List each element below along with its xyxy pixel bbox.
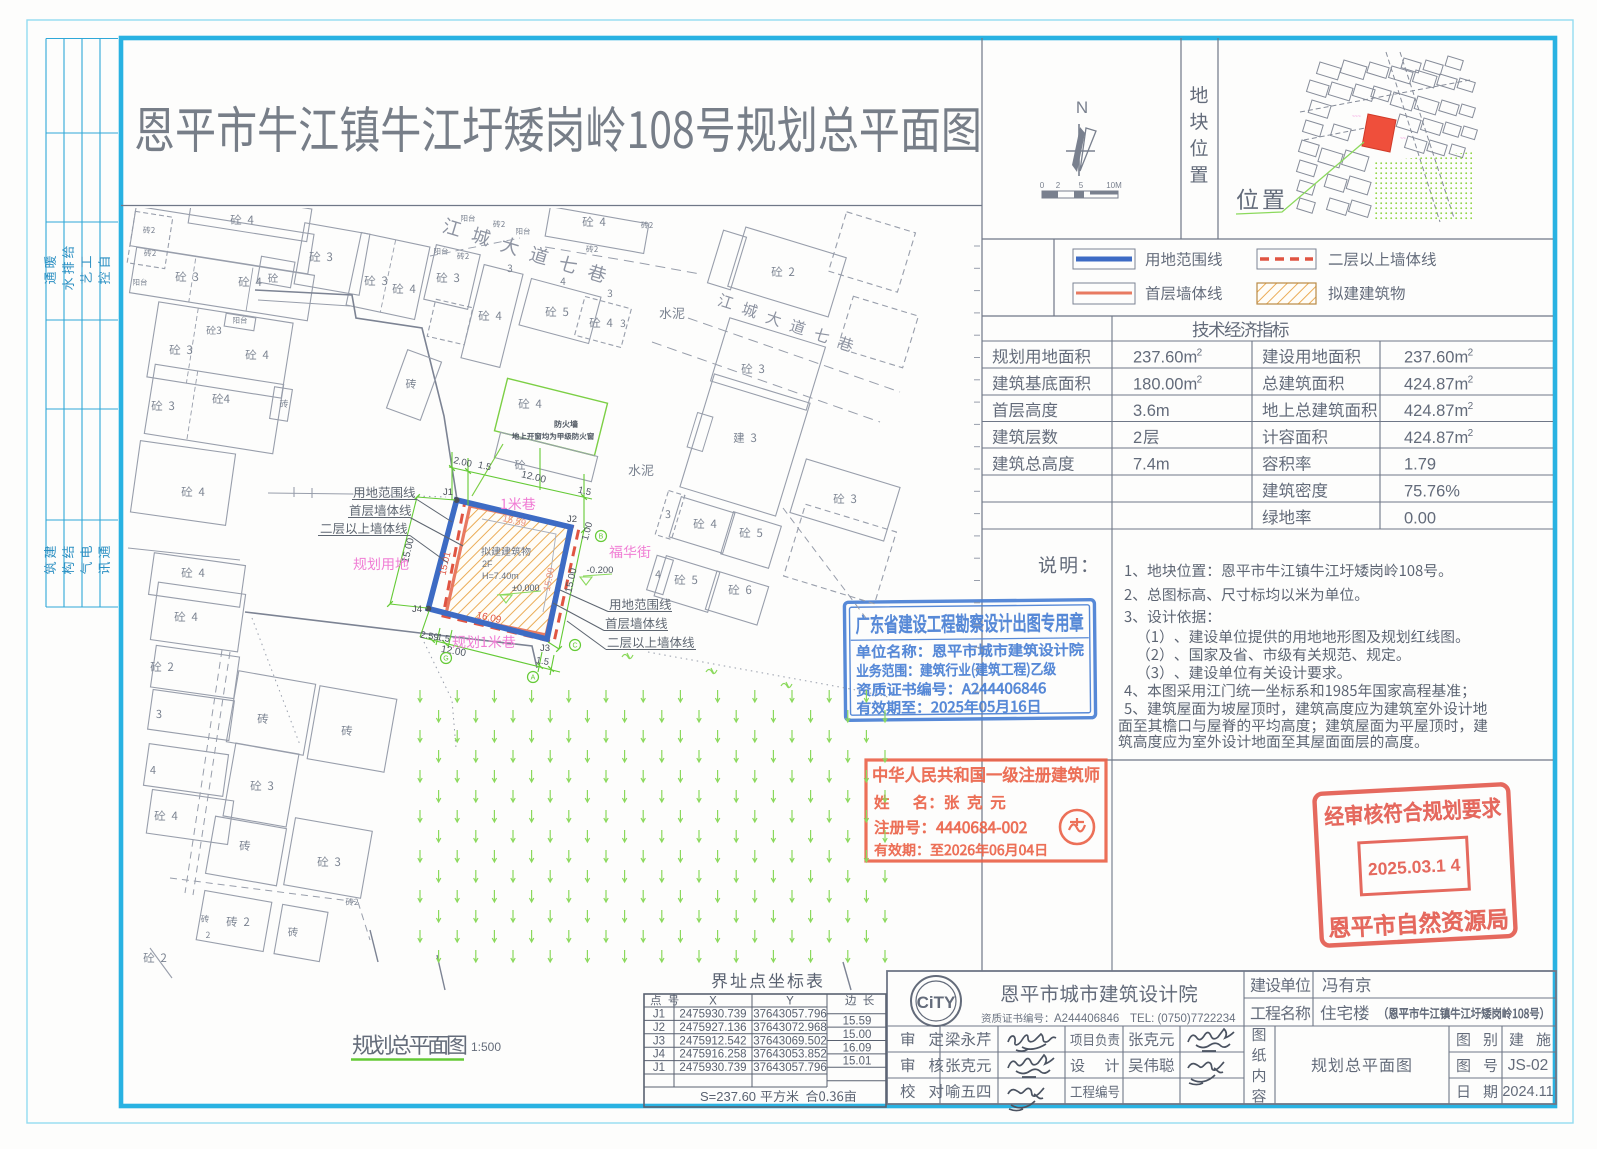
svg-text:2: 2	[1468, 374, 1474, 385]
svg-text:7.4m: 7.4m	[1133, 456, 1170, 474]
svg-text:G: G	[443, 656, 448, 663]
svg-text:37643072.968: 37643072.968	[753, 1022, 827, 1034]
svg-text:X: X	[709, 996, 717, 1008]
svg-text:2475930.739: 2475930.739	[679, 1009, 746, 1021]
svg-text:N: N	[1076, 98, 1088, 117]
svg-text:1.79: 1.79	[1404, 456, 1436, 474]
svg-text:A: A	[531, 675, 536, 682]
svg-text:10M: 10M	[1106, 181, 1122, 190]
svg-text:5: 5	[1079, 181, 1084, 190]
svg-text:2475930.739: 2475930.739	[679, 1062, 746, 1074]
svg-text:B: B	[599, 534, 604, 541]
svg-text:37643069.502: 37643069.502	[753, 1035, 827, 1047]
svg-text:CiTY: CiTY	[917, 993, 956, 1012]
svg-text:15.01: 15.01	[843, 1056, 872, 1068]
svg-text:37643057.796: 37643057.796	[753, 1062, 827, 1074]
svg-text:1.5: 1.5	[436, 632, 451, 645]
svg-text:~~~: ~~~	[1352, 114, 1361, 120]
svg-text:424.87m: 424.87m	[1404, 429, 1468, 447]
svg-text:C: C	[572, 643, 577, 650]
svg-text:15.59: 15.59	[843, 1016, 872, 1028]
svg-text:J1: J1	[443, 487, 453, 498]
svg-text:J1: J1	[653, 1009, 665, 1021]
svg-text:37643057.796: 37643057.796	[753, 1009, 827, 1021]
svg-text:J4: J4	[653, 1049, 666, 1061]
svg-text:0.00: 0.00	[1404, 509, 1436, 527]
svg-text:J4: J4	[412, 604, 422, 615]
svg-text:2024.11: 2024.11	[1502, 1084, 1553, 1100]
svg-text:S=237.60: S=237.60	[700, 1089, 756, 1104]
svg-text:2: 2	[1468, 428, 1474, 439]
svg-text:TEL: (0750)7722234: TEL: (0750)7722234	[1130, 1013, 1236, 1025]
svg-text:J2: J2	[567, 514, 577, 525]
svg-text:JS-02: JS-02	[1508, 1057, 1549, 1074]
svg-text:2475912.542: 2475912.542	[679, 1035, 746, 1047]
svg-text:1.5: 1.5	[535, 655, 550, 668]
svg-text:424.87m: 424.87m	[1404, 402, 1468, 420]
svg-text:J2: J2	[653, 1022, 665, 1034]
svg-text:237.60m: 237.60m	[1133, 349, 1197, 367]
svg-text:2475927.136: 2475927.136	[679, 1022, 746, 1034]
svg-text:J1: J1	[653, 1062, 665, 1074]
svg-text:2: 2	[1468, 401, 1474, 412]
svg-text:180.00m: 180.00m	[1133, 375, 1197, 393]
svg-text:15.00: 15.00	[843, 1029, 872, 1041]
svg-text:37643053.852: 37643053.852	[753, 1049, 827, 1061]
svg-text:0: 0	[1040, 181, 1045, 190]
svg-text:2: 2	[1197, 374, 1203, 385]
svg-text:2: 2	[1133, 429, 1142, 447]
svg-text:2: 2	[1197, 348, 1203, 359]
svg-text:A244406846: A244406846	[1054, 1013, 1119, 1025]
svg-text:H=7.40m: H=7.40m	[482, 571, 519, 581]
svg-text:1:500: 1:500	[471, 1040, 501, 1054]
svg-text:16.09: 16.09	[843, 1042, 872, 1054]
svg-text:75.76%: 75.76%	[1404, 483, 1460, 501]
svg-text:2F: 2F	[482, 559, 493, 569]
svg-text:2: 2	[1468, 348, 1474, 359]
svg-text:2475916.258: 2475916.258	[679, 1049, 746, 1061]
svg-text:Y: Y	[786, 996, 794, 1008]
svg-text:2: 2	[1056, 181, 1061, 190]
svg-text:~~: ~~	[1400, 136, 1406, 142]
svg-text:3.6m: 3.6m	[1133, 402, 1170, 420]
svg-text:237.60m: 237.60m	[1404, 349, 1468, 367]
svg-text:J3: J3	[540, 643, 550, 654]
svg-text:-0.200: -0.200	[587, 565, 614, 576]
svg-text:J3: J3	[653, 1035, 665, 1047]
svg-text:424.87m: 424.87m	[1404, 375, 1468, 393]
